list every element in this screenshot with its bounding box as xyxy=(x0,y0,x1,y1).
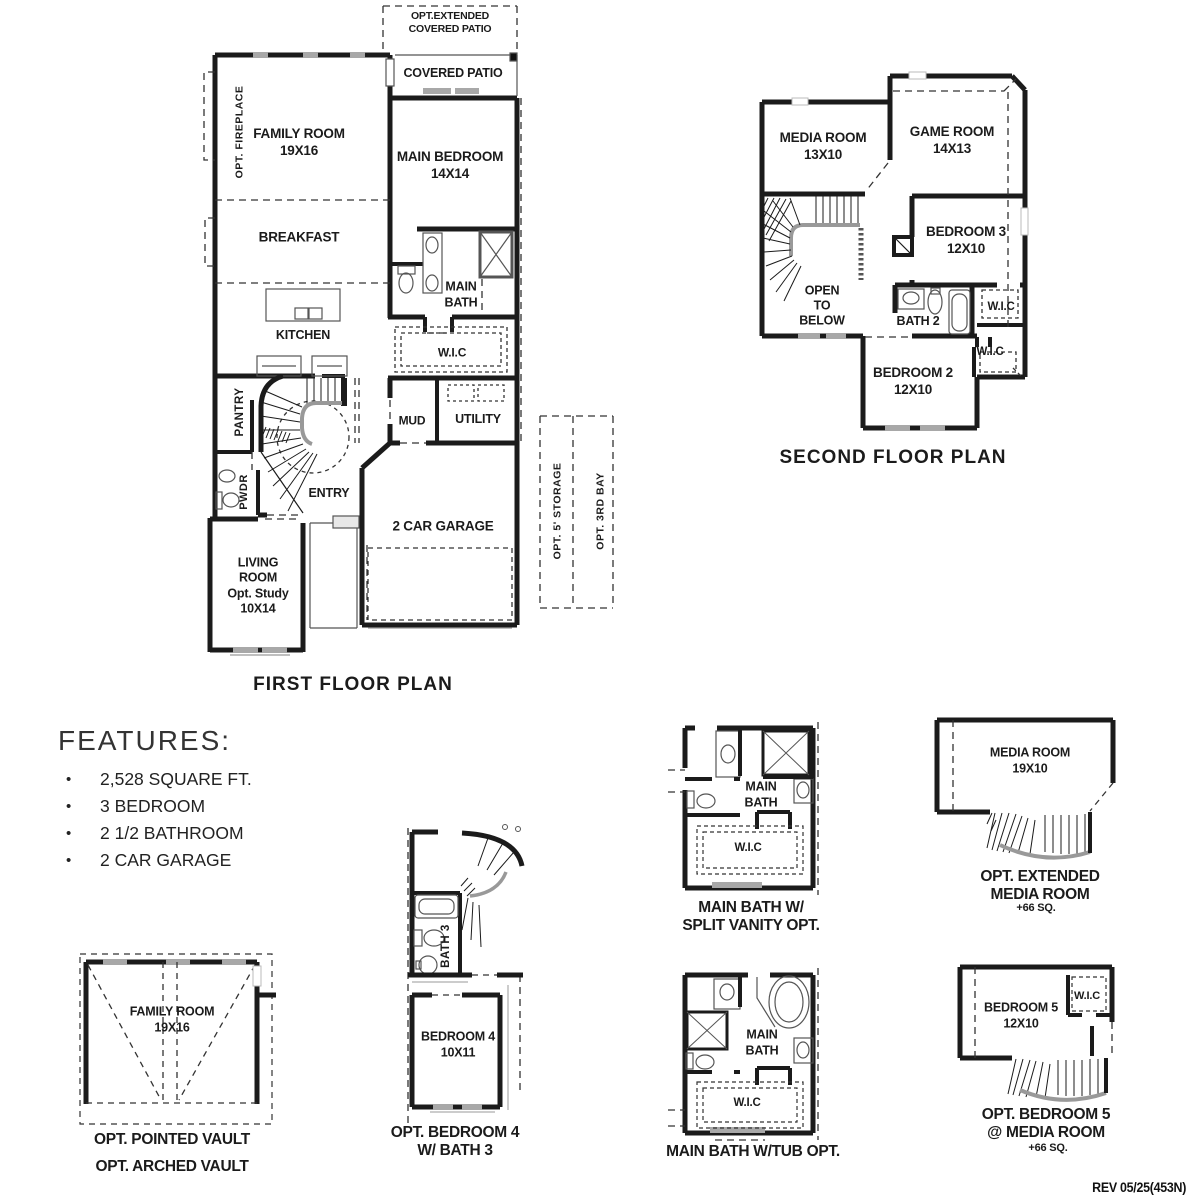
label-main-bath-split: MAIN BATH xyxy=(745,779,778,810)
label-bath-3: BATH 3 xyxy=(439,924,453,968)
caption-pointed-vault: OPT. POINTED VAULT xyxy=(94,1131,250,1149)
label-bedroom-3: BEDROOM 3 12X10 xyxy=(926,224,1006,258)
label-wic: W.I.C xyxy=(438,346,466,361)
label-main-bedroom: MAIN BEDROOM 14X14 xyxy=(397,149,503,183)
feature-text: 2 CAR GARAGE xyxy=(100,850,231,871)
label-main-bath-tub: MAIN BATH xyxy=(746,1027,779,1058)
feature-item: • 2 1/2 BATHROOM xyxy=(58,820,252,847)
opt-bath-tub xyxy=(668,968,818,1140)
label-breakfast: BREAKFAST xyxy=(259,230,340,247)
label-wic-tub: W.I.C xyxy=(733,1096,760,1110)
label-mud: MUD xyxy=(399,414,426,429)
feature-text: 2 1/2 BATHROOM xyxy=(100,823,244,844)
caption-bath-tub: MAIN BATH W/TUB OPT. xyxy=(666,1143,840,1161)
opt-vault xyxy=(80,954,276,1124)
features-list: FEATURES: • 2,528 SQUARE FT. • 3 BEDROOM… xyxy=(58,725,252,874)
label-game-room: GAME ROOM 14X13 xyxy=(910,124,994,158)
label-pantry: PANTRY xyxy=(233,388,247,437)
caption-opt-bedroom-4: OPT. BEDROOM 4 W/ BATH 3 xyxy=(391,1124,519,1160)
label-vault-room: FAMILY ROOM 19X16 xyxy=(130,1004,215,1035)
label-wic-b: W.I.C xyxy=(976,345,1003,359)
opt-bedroom5 xyxy=(960,967,1112,1100)
label-bedroom-4: BEDROOM 4 10X11 xyxy=(421,1029,495,1060)
bullet: • xyxy=(58,798,100,815)
caption-bedroom-5: OPT. BEDROOM 5 @ MEDIA ROOM xyxy=(982,1106,1110,1142)
label-media-room: MEDIA ROOM 13X10 xyxy=(780,130,867,164)
label-open-to-below: OPEN TO BELOW xyxy=(799,284,845,329)
feature-item: • 2,528 SQUARE FT. xyxy=(58,766,252,793)
opt-ext-media xyxy=(937,720,1113,858)
label-bath-2: BATH 2 xyxy=(896,314,939,330)
caption-ext-media: OPT. EXTENDED MEDIA ROOM xyxy=(980,868,1099,904)
label-wic-split: W.I.C xyxy=(734,841,761,855)
label-opt-extended-covered-patio: OPT.EXTENDED COVERED PATIO xyxy=(409,10,492,36)
feature-text: 3 BEDROOM xyxy=(100,796,205,817)
label-pwdr: PWDR xyxy=(238,474,252,510)
bullet: • xyxy=(58,825,100,842)
caption-bedroom-5-sq: +66 SQ. xyxy=(1028,1142,1067,1156)
second-floor-title: SECOND FLOOR PLAN xyxy=(779,446,1006,470)
label-ext-media-room: MEDIA ROOM 19X10 xyxy=(990,745,1070,776)
label-wic-a: W.I.C xyxy=(987,300,1014,314)
label-covered-patio: COVERED PATIO xyxy=(403,66,502,82)
feature-item: • 3 BEDROOM xyxy=(58,793,252,820)
label-main-bath: MAIN BATH xyxy=(445,279,478,310)
label-entry: ENTRY xyxy=(309,486,350,502)
bullet: • xyxy=(58,852,100,869)
label-wic-bedroom5: W.I.C xyxy=(1074,990,1100,1004)
feature-text: 2,528 SQUARE FT. xyxy=(100,769,252,790)
features-heading: FEATURES: xyxy=(58,725,252,757)
label-garage: 2 CAR GARAGE xyxy=(392,519,493,536)
label-bedroom-5: BEDROOM 5 12X10 xyxy=(984,1000,1058,1031)
label-living-room: LIVING ROOM Opt. Study 10X14 xyxy=(227,556,288,617)
label-kitchen: KITCHEN xyxy=(276,328,330,344)
caption-ext-media-sq: +66 SQ. xyxy=(1016,902,1055,916)
opt-bedroom4 xyxy=(408,825,523,1129)
label-opt-3rd-bay: OPT. 3RD BAY xyxy=(594,472,607,549)
floor-plan-sheet: OPT.EXTENDED COVERED PATIO COVERED PATIO… xyxy=(0,0,1200,1200)
label-bedroom-2: BEDROOM 2 12X10 xyxy=(873,365,953,399)
label-family-room: FAMILY ROOM 19X16 xyxy=(253,126,345,160)
feature-item: • 2 CAR GARAGE xyxy=(58,847,252,874)
caption-bath-split: MAIN BATH W/ SPLIT VANITY OPT. xyxy=(682,899,819,935)
label-opt-fireplace: OPT. FIREPLACE xyxy=(233,86,246,179)
label-opt-5-storage: OPT. 5' STORAGE xyxy=(551,463,564,560)
first-floor-title: FIRST FLOOR PLAN xyxy=(253,673,453,697)
revision-label: REV 05/25(453N) xyxy=(1092,1180,1186,1195)
bullet: • xyxy=(58,771,100,788)
label-utility: UTILITY xyxy=(455,412,501,428)
opt-bath-split xyxy=(668,722,818,895)
caption-arched-vault: OPT. ARCHED VAULT xyxy=(95,1158,248,1176)
